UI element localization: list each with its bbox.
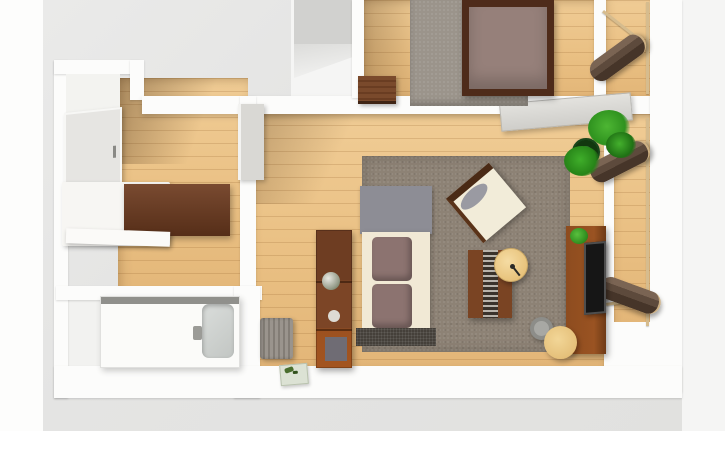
- page-margin-left: [0, 0, 43, 431]
- shelf-bowl-decor: [328, 310, 340, 322]
- sofa-back-section: [360, 186, 432, 234]
- wall-entry-joint: [130, 60, 144, 100]
- closet-cabinet: [294, 0, 356, 44]
- shelf-flowers-decor: [322, 272, 340, 290]
- wall-balcony-bottom: [604, 322, 652, 368]
- floorplan-render: [0, 0, 725, 453]
- shelf-box-decor: [325, 337, 347, 361]
- double-bed: [462, 0, 554, 96]
- plant-frond: [606, 132, 636, 158]
- page-margin-bottom: [0, 431, 725, 453]
- shelf-divider: [316, 329, 352, 331]
- bathtub-basin: [202, 304, 234, 358]
- single-bed-duvet: [124, 184, 230, 236]
- sofa-base: [356, 328, 436, 346]
- balcony-railing: [646, 2, 649, 94]
- wicker-dresser: [358, 76, 396, 104]
- page-margin-right: [682, 0, 725, 431]
- tv: [584, 241, 606, 315]
- laundry-hamper: [260, 318, 293, 359]
- plant-frond: [564, 146, 600, 176]
- bathtub-faucet-icon: [193, 326, 202, 340]
- interior-door: [238, 104, 264, 180]
- sofa-cushion: [372, 284, 412, 328]
- wall-outer-right: [650, 0, 682, 392]
- bath-mat: [279, 363, 309, 386]
- round-side-table: [494, 248, 528, 282]
- sofa-cushion: [372, 237, 412, 281]
- round-stool: [544, 326, 577, 359]
- wall-outer-bottom: [54, 366, 682, 398]
- wall-entry-top: [54, 60, 140, 74]
- tv-stand-plant-icon: [570, 228, 588, 244]
